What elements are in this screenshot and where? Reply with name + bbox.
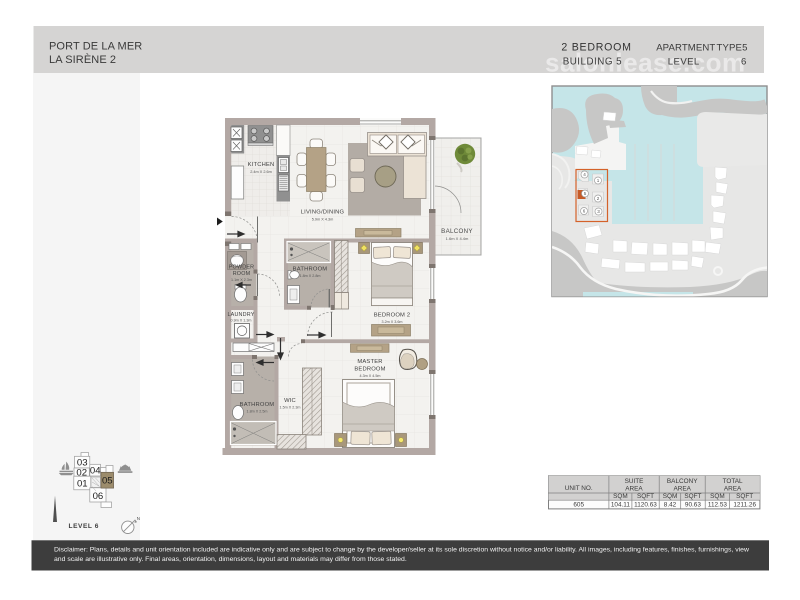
- svg-text:N: N: [137, 516, 141, 522]
- svg-text:2.4m X 2.6m: 2.4m X 2.6m: [250, 170, 272, 174]
- svg-text:0.9m X 1.3m: 0.9m X 1.3m: [231, 319, 252, 323]
- svg-text:BALCONY: BALCONY: [667, 478, 698, 485]
- svg-text:BALCONY: BALCONY: [441, 228, 473, 235]
- svg-text:112.53: 112.53: [708, 501, 728, 508]
- svg-text:04: 04: [90, 466, 101, 477]
- svg-text:1.5m X 2.3m: 1.5m X 2.3m: [280, 406, 301, 410]
- svg-text:BUILDING 5: BUILDING 5: [563, 56, 622, 67]
- svg-text:6: 6: [741, 56, 746, 67]
- svg-text:1120.63: 1120.63: [634, 501, 657, 508]
- svg-text:ROOM: ROOM: [233, 271, 251, 277]
- svg-text:4.3m X 4.5m: 4.3m X 4.5m: [360, 374, 381, 378]
- svg-text:8.42: 8.42: [664, 501, 677, 508]
- svg-text:LAUNDRY: LAUNDRY: [227, 312, 254, 318]
- svg-text:3.2m X 3.6m: 3.2m X 3.6m: [382, 320, 403, 324]
- svg-text:BEDROOM: BEDROOM: [354, 367, 385, 373]
- svg-text:AREA: AREA: [625, 485, 643, 492]
- svg-text:APARTMENT: APARTMENT: [656, 42, 715, 53]
- svg-text:AREA: AREA: [724, 485, 742, 492]
- svg-text:LA SIRÈNE 2: LA SIRÈNE 2: [49, 53, 116, 66]
- svg-text:SQM: SQM: [613, 493, 628, 500]
- svg-text:SQM: SQM: [663, 493, 678, 500]
- svg-text:SUITE: SUITE: [625, 478, 644, 485]
- svg-text:BEDROOM 2: BEDROOM 2: [374, 313, 411, 319]
- svg-text:LEVEL: LEVEL: [668, 56, 700, 67]
- svg-text:SQFT: SQFT: [736, 493, 753, 500]
- svg-text:Disclaimer: Plans, details and: Disclaimer: Plans, details and unit orie…: [54, 547, 749, 554]
- svg-text:1211.26: 1211.26: [733, 501, 756, 508]
- svg-text:KITCHEN: KITCHEN: [248, 162, 275, 168]
- svg-text:1.6m X 4.4m: 1.6m X 4.4m: [446, 236, 469, 241]
- svg-text:1: 1: [597, 178, 600, 183]
- svg-text:1.8m X 2.8m: 1.8m X 2.8m: [300, 274, 321, 278]
- svg-text:3: 3: [597, 209, 600, 214]
- svg-text:104.11: 104.11: [611, 501, 631, 508]
- svg-text:1.8m X 2.5m: 1.8m X 2.5m: [247, 410, 268, 414]
- svg-text:TOTAL: TOTAL: [723, 478, 743, 485]
- svg-text:LEVEL 6: LEVEL 6: [69, 523, 99, 530]
- svg-text:5: 5: [584, 191, 587, 196]
- svg-text:2 BEDROOM: 2 BEDROOM: [561, 41, 631, 53]
- svg-text:SQFT: SQFT: [637, 493, 654, 500]
- svg-text:POWDER: POWDER: [229, 265, 254, 271]
- svg-text:4: 4: [583, 172, 586, 177]
- svg-text:90.63: 90.63: [685, 501, 701, 508]
- svg-text:05: 05: [102, 476, 113, 487]
- svg-text:TYPE: TYPE: [717, 42, 742, 53]
- svg-text:WIC: WIC: [284, 398, 296, 404]
- svg-text:MASTER: MASTER: [357, 359, 382, 365]
- svg-text:02: 02: [76, 467, 87, 478]
- svg-text:PORT DE LA MER: PORT DE LA MER: [49, 40, 142, 52]
- svg-text:SQM: SQM: [710, 493, 725, 500]
- svg-text:LIVING/DINING: LIVING/DINING: [301, 210, 345, 216]
- svg-text:UNIT NO.: UNIT NO.: [565, 485, 593, 492]
- svg-text:5: 5: [742, 42, 747, 53]
- svg-text:AREA: AREA: [673, 485, 691, 492]
- svg-text:6: 6: [583, 209, 586, 214]
- svg-text:2: 2: [597, 196, 600, 201]
- svg-text:605: 605: [573, 501, 584, 508]
- svg-text:BATHROOM: BATHROOM: [240, 402, 275, 408]
- svg-text:and scale are illustrative onl: and scale are illustrative only. Final a…: [54, 556, 407, 563]
- svg-text:5.9m X 4.3m: 5.9m X 4.3m: [312, 218, 334, 222]
- svg-text:01: 01: [77, 479, 88, 490]
- svg-text:06: 06: [93, 491, 104, 502]
- svg-text:1.1m X 2.3m: 1.1m X 2.3m: [231, 278, 252, 282]
- svg-text:SQFT: SQFT: [684, 493, 701, 500]
